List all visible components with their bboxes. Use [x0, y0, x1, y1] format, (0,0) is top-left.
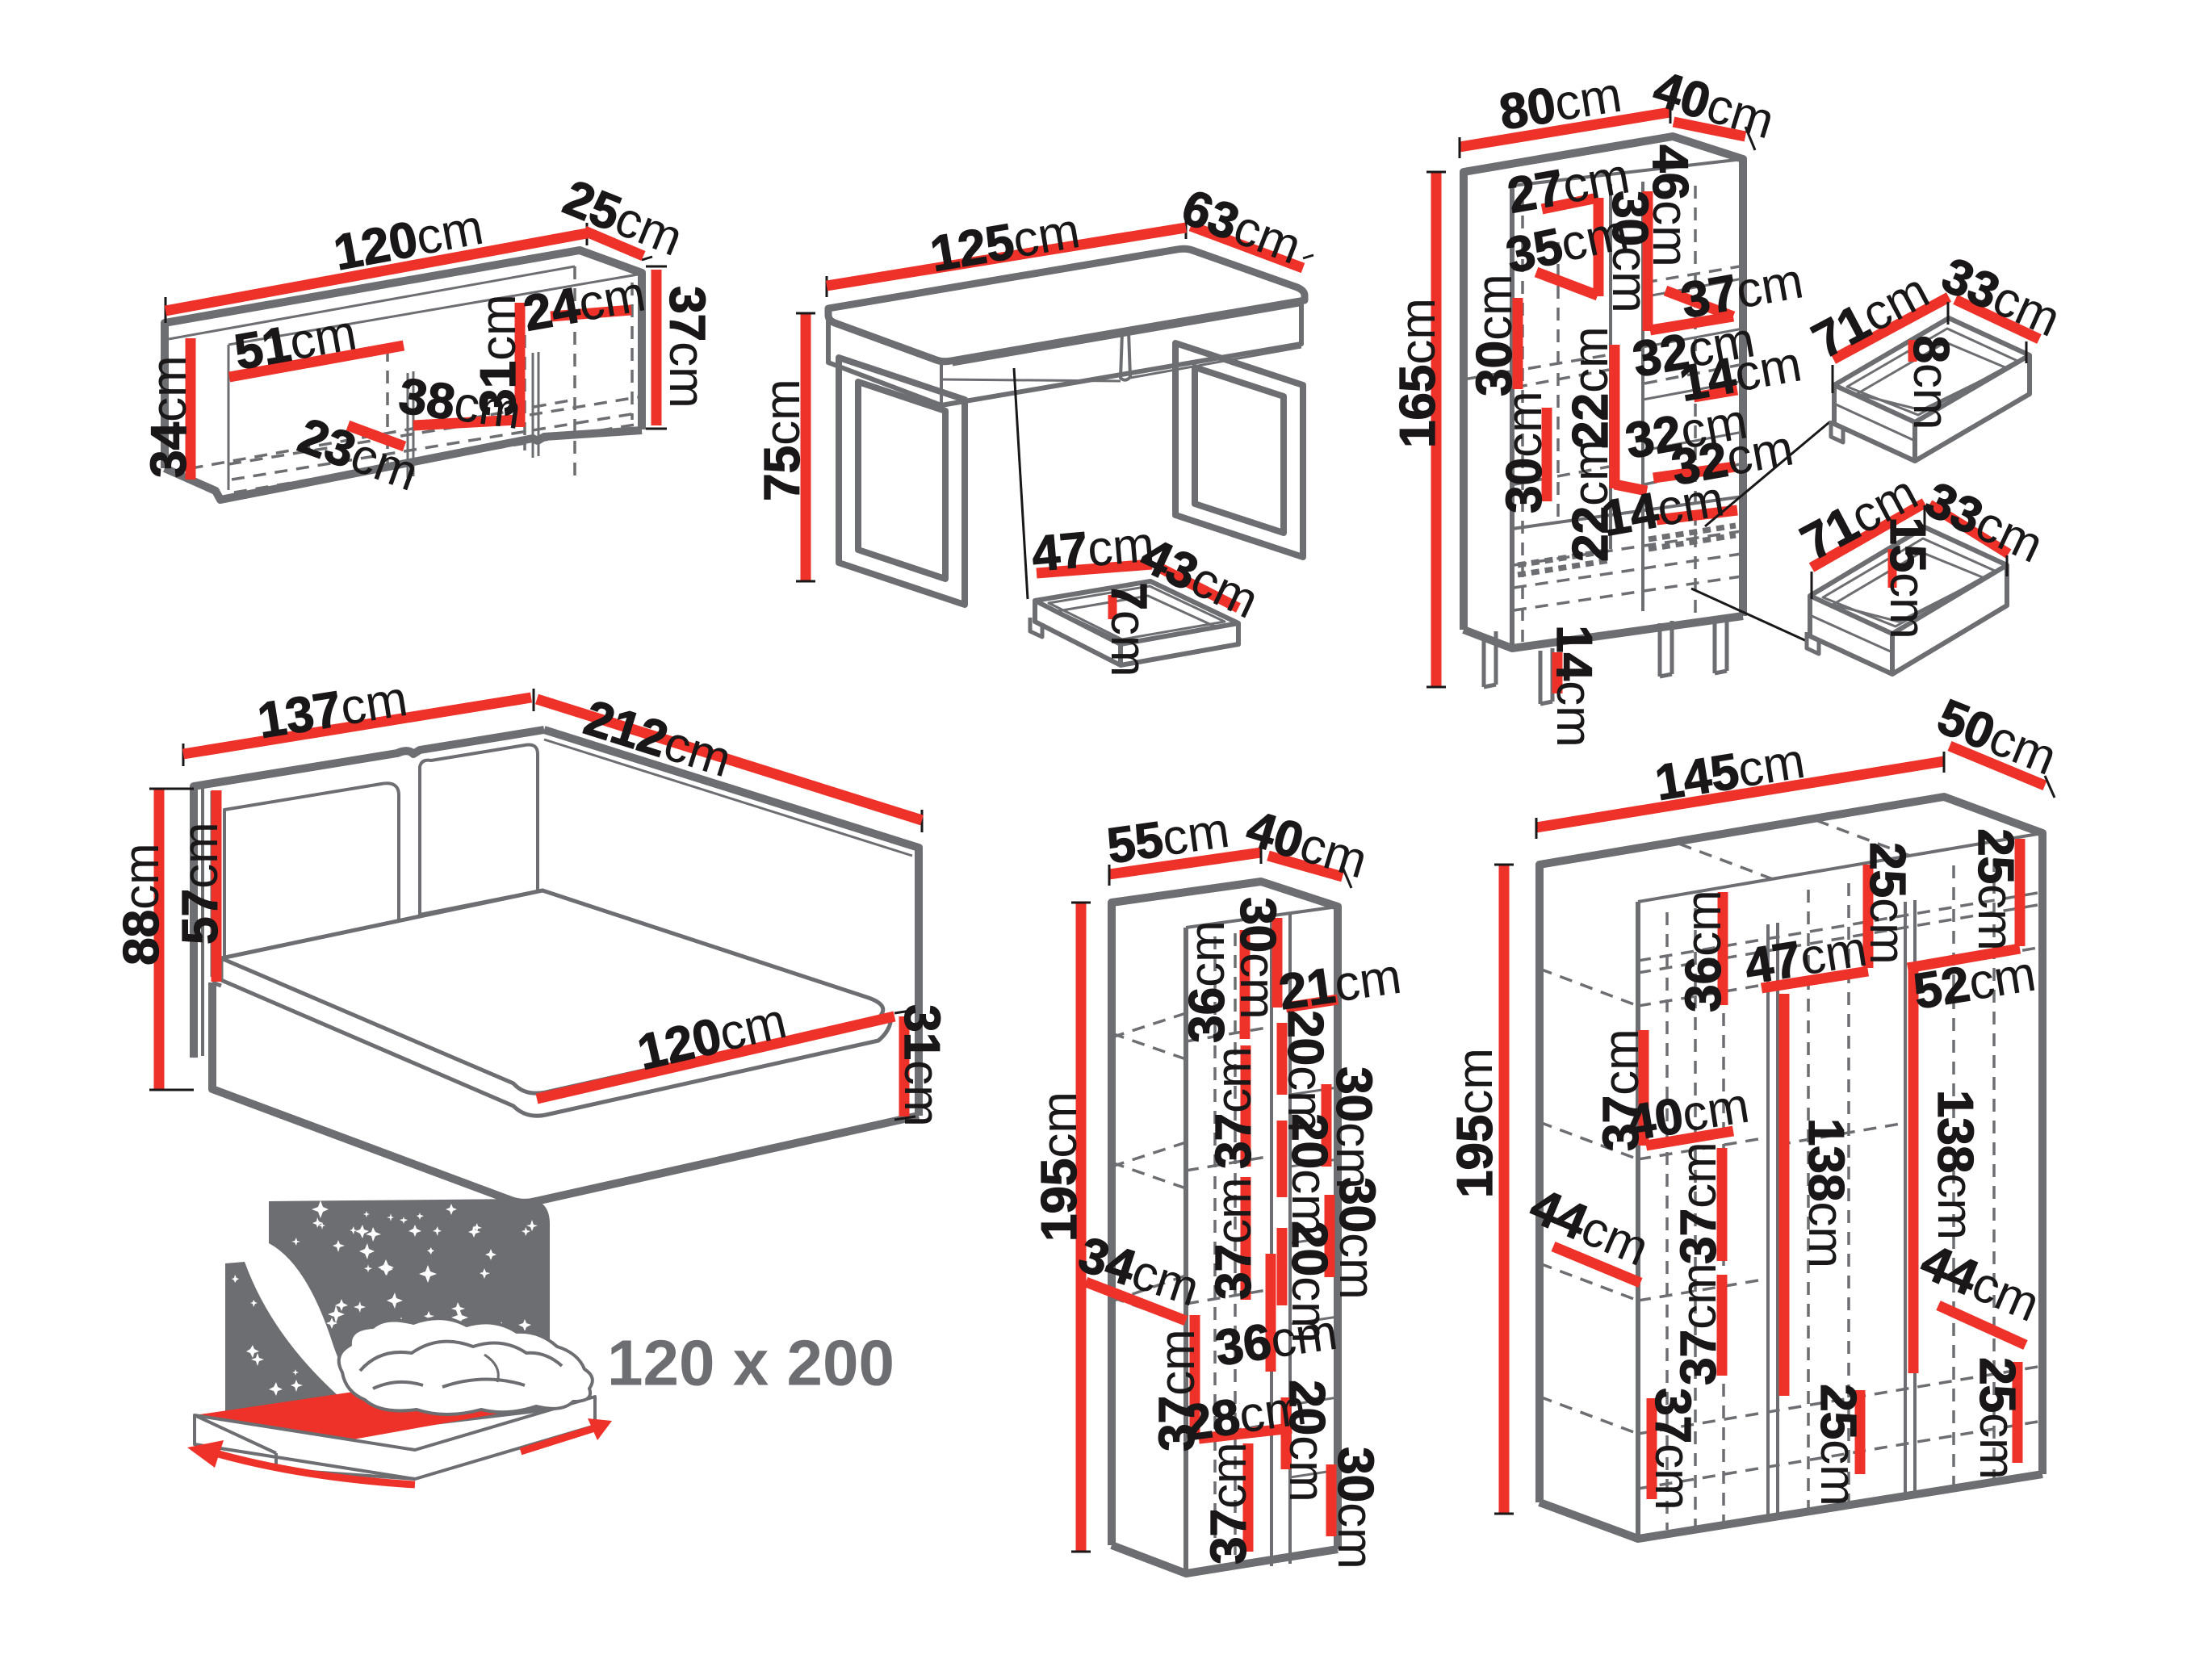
svg-text:37cm: 37cm: [1645, 1388, 1701, 1510]
svg-text:7cm: 7cm: [1101, 582, 1157, 677]
svg-text:30cm: 30cm: [1330, 1177, 1385, 1300]
svg-text:37cm: 37cm: [1206, 1177, 1262, 1300]
svg-text:37cm: 37cm: [1150, 1329, 1205, 1452]
svg-text:25cm: 25cm: [1811, 1384, 1866, 1506]
svg-text:14cm: 14cm: [1547, 625, 1602, 748]
svg-text:37cm: 37cm: [1201, 1442, 1257, 1565]
svg-text:8cm: 8cm: [1904, 335, 1959, 429]
svg-text:30cm: 30cm: [1497, 391, 1552, 513]
svg-text:75cm: 75cm: [755, 379, 811, 501]
svg-text:31cm: 31cm: [471, 294, 526, 417]
svg-text:30cm: 30cm: [1328, 1447, 1384, 1569]
svg-text:22cm: 22cm: [1563, 326, 1619, 449]
svg-text:195cm: 195cm: [1447, 1048, 1503, 1198]
svg-text:25cm: 25cm: [1970, 1357, 2026, 1480]
svg-text:36cm: 36cm: [1676, 890, 1732, 1012]
svg-text:37cm: 37cm: [660, 286, 715, 408]
svg-text:138cm: 138cm: [1799, 1118, 1854, 1268]
svg-text:36cm: 36cm: [1179, 920, 1235, 1043]
svg-text:20cm: 20cm: [1280, 1380, 1335, 1502]
svg-text:31cm: 31cm: [894, 1004, 950, 1127]
svg-text:88cm: 88cm: [114, 843, 170, 966]
svg-text:46cm: 46cm: [1643, 145, 1699, 267]
svg-text:37cm: 37cm: [1671, 1142, 1727, 1264]
svg-text:37cm: 37cm: [1671, 1263, 1727, 1385]
svg-text:138cm: 138cm: [1928, 1090, 1984, 1240]
svg-text:120 x 200: 120 x 200: [607, 1327, 894, 1399]
svg-text:20cm: 20cm: [1282, 1113, 1338, 1236]
svg-text:165cm: 165cm: [1390, 298, 1446, 448]
svg-text:30cm: 30cm: [1230, 897, 1286, 1020]
svg-text:15cm: 15cm: [1880, 517, 1936, 639]
svg-text:30cm: 30cm: [1467, 274, 1523, 396]
svg-text:57cm: 57cm: [173, 822, 228, 945]
svg-text:25cm: 25cm: [1968, 828, 2024, 951]
svg-text:195cm: 195cm: [1032, 1091, 1087, 1242]
svg-text:37cm: 37cm: [1206, 1046, 1262, 1169]
svg-text:25cm: 25cm: [1860, 842, 1916, 965]
svg-text:34cm: 34cm: [141, 355, 197, 478]
